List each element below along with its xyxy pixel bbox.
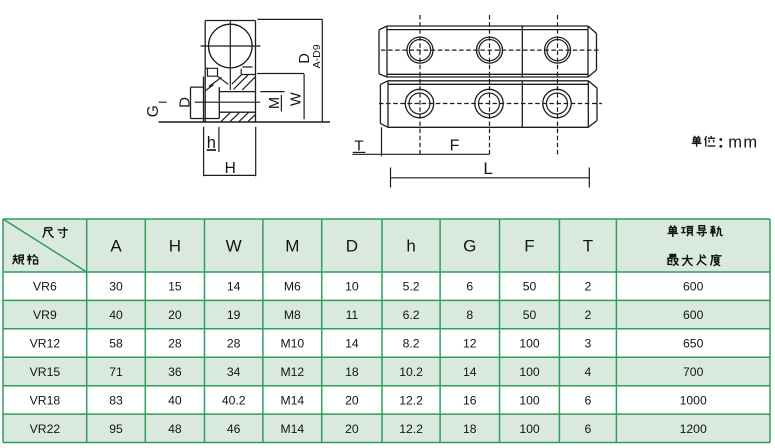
svg-text:W: W	[226, 237, 242, 256]
svg-text:19: 19	[227, 308, 241, 322]
svg-text:48: 48	[168, 422, 182, 436]
svg-text:5.2: 5.2	[403, 280, 420, 294]
svg-text:18: 18	[345, 365, 359, 379]
svg-text:12.2: 12.2	[399, 422, 423, 436]
svg-text:6: 6	[585, 393, 592, 407]
svg-text:2: 2	[585, 280, 592, 294]
svg-text:100: 100	[519, 393, 540, 407]
svg-text:600: 600	[683, 308, 704, 322]
svg-text:20: 20	[345, 393, 359, 407]
svg-text:1000: 1000	[680, 393, 707, 407]
svg-text:600: 600	[683, 280, 704, 294]
svg-text:M8: M8	[284, 308, 301, 322]
svg-text:D: D	[346, 237, 358, 256]
svg-text:50: 50	[523, 308, 537, 322]
svg-text:W: W	[288, 92, 304, 106]
svg-text:100: 100	[519, 337, 540, 351]
svg-text:40: 40	[109, 308, 123, 322]
svg-text:40.2: 40.2	[222, 393, 246, 407]
svg-text:H: H	[169, 237, 181, 256]
svg-text:VR12: VR12	[30, 337, 61, 351]
svg-text:71: 71	[109, 365, 123, 379]
svg-text:VR6: VR6	[33, 280, 57, 294]
svg-text:8: 8	[466, 308, 473, 322]
svg-text:G: G	[145, 105, 162, 117]
svg-text:G: G	[463, 237, 476, 256]
svg-text:46: 46	[227, 422, 241, 436]
svg-text:VR9: VR9	[33, 308, 57, 322]
svg-text:10: 10	[345, 280, 359, 294]
svg-text:mm: mm	[728, 133, 759, 151]
svg-text:8.2: 8.2	[403, 337, 420, 351]
svg-text:T: T	[583, 237, 593, 256]
svg-text:M14: M14	[280, 422, 304, 436]
svg-text:15: 15	[168, 280, 182, 294]
svg-text:83: 83	[109, 393, 123, 407]
svg-text:14: 14	[227, 280, 241, 294]
svg-text:4: 4	[585, 365, 592, 379]
svg-text:18: 18	[463, 422, 477, 436]
svg-text:16: 16	[463, 393, 477, 407]
svg-text:1200: 1200	[680, 422, 707, 436]
svg-text:h: h	[406, 237, 415, 256]
svg-text:30: 30	[109, 280, 123, 294]
svg-text:L: L	[483, 159, 492, 178]
svg-text:700: 700	[683, 365, 704, 379]
svg-text:2: 2	[585, 308, 592, 322]
svg-text:20: 20	[168, 308, 182, 322]
svg-text:650: 650	[683, 337, 704, 351]
svg-text:VR22: VR22	[30, 422, 61, 436]
svg-text:34: 34	[227, 365, 241, 379]
svg-text:12: 12	[463, 337, 477, 351]
svg-text:6: 6	[585, 422, 592, 436]
svg-text:100: 100	[519, 365, 540, 379]
svg-text:VR18: VR18	[30, 393, 61, 407]
svg-text:95: 95	[109, 422, 123, 436]
svg-text:6: 6	[466, 280, 473, 294]
svg-text:28: 28	[227, 337, 241, 351]
svg-text:M6: M6	[284, 280, 301, 294]
svg-text:14: 14	[463, 365, 477, 379]
svg-text:6.2: 6.2	[403, 308, 420, 322]
svg-text:A: A	[110, 237, 122, 256]
svg-text:VR15: VR15	[30, 365, 61, 379]
svg-text:12.2: 12.2	[399, 393, 423, 407]
svg-text:100: 100	[519, 422, 540, 436]
svg-text:58: 58	[109, 337, 123, 351]
svg-text:M: M	[267, 97, 283, 109]
svg-text:40: 40	[168, 393, 182, 407]
svg-text:50: 50	[523, 280, 537, 294]
svg-text:F: F	[450, 138, 460, 155]
svg-text:3: 3	[585, 337, 592, 351]
svg-text:F: F	[524, 237, 534, 256]
svg-text:11: 11	[346, 308, 359, 322]
svg-text:28: 28	[168, 337, 182, 351]
svg-text:20: 20	[345, 422, 359, 436]
svg-text:36: 36	[168, 365, 182, 379]
svg-text:A-D9: A-D9	[311, 44, 323, 68]
svg-text:M14: M14	[280, 393, 304, 407]
svg-text:H: H	[225, 160, 236, 177]
svg-text:10.2: 10.2	[399, 365, 423, 379]
svg-text:M12: M12	[280, 365, 304, 379]
svg-text:M: M	[285, 237, 299, 256]
svg-text:D: D	[176, 97, 193, 108]
svg-text:M10: M10	[280, 337, 304, 351]
svg-text:h: h	[207, 134, 216, 152]
svg-text:14: 14	[345, 337, 359, 351]
